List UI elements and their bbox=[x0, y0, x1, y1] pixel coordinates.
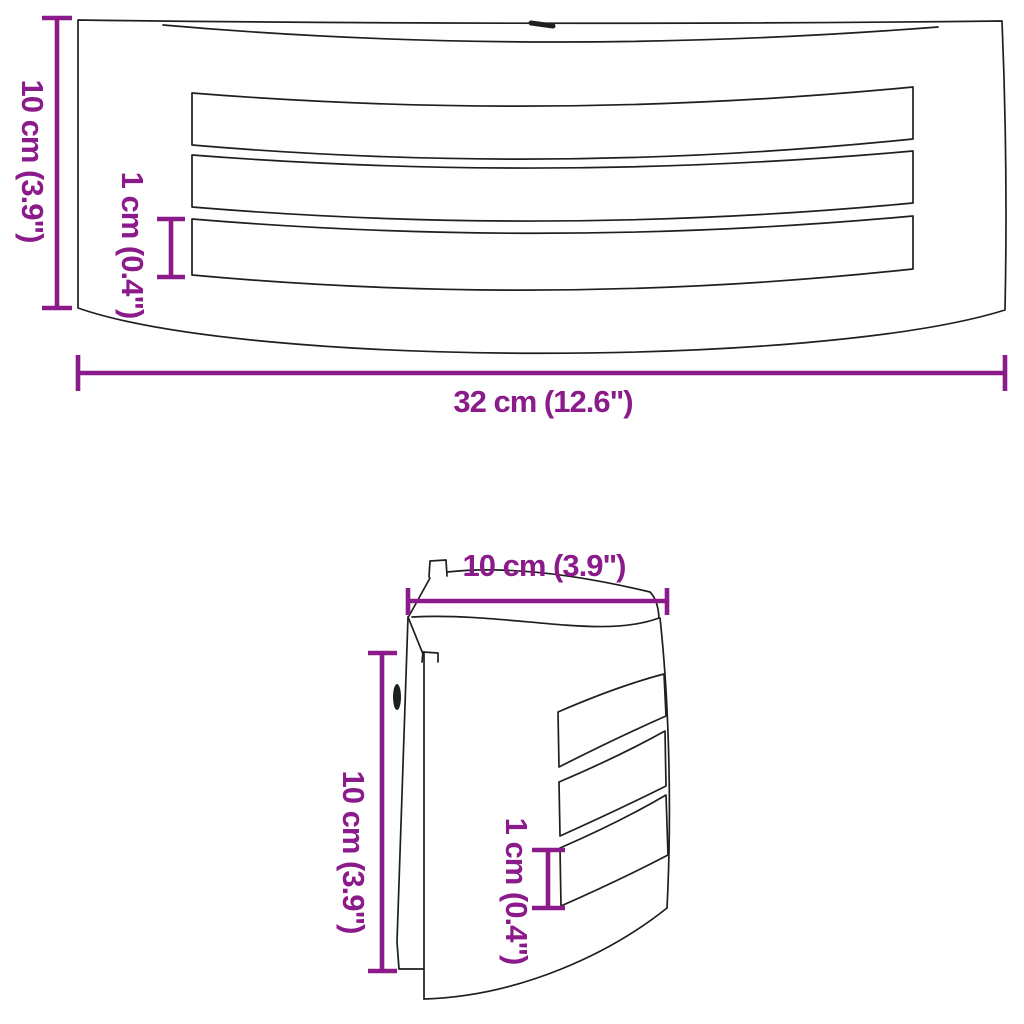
front-width-dimension-label: 32 cm (12.6") bbox=[453, 384, 632, 420]
side-height-dimension-label: 10 cm (3.9") bbox=[335, 771, 371, 934]
front-body-outline bbox=[78, 20, 1006, 353]
side-height-dimension-line bbox=[368, 653, 397, 971]
front-view-dimensions bbox=[42, 18, 1005, 391]
side-wall-plate-outline bbox=[397, 617, 424, 969]
front-slot-dimension-label: 1 cm (0.4") bbox=[114, 172, 150, 319]
side-slot-1 bbox=[558, 674, 666, 767]
front-slot-1 bbox=[192, 87, 913, 159]
front-slot-3 bbox=[192, 216, 913, 290]
side-slot-2 bbox=[559, 731, 666, 836]
front-view-drawing bbox=[78, 20, 1006, 353]
front-slot-dimension-line bbox=[157, 219, 185, 277]
side-depth-dimension-label: 10 cm (3.9") bbox=[463, 548, 626, 584]
side-top-face-near-edge bbox=[412, 616, 659, 626]
side-depth-dimension-line bbox=[408, 588, 667, 615]
front-height-dimension-label: 10 cm (3.9") bbox=[14, 80, 50, 243]
side-plate-top-slant bbox=[408, 617, 423, 654]
front-top-screw-notch bbox=[531, 23, 553, 26]
side-screw-hole bbox=[393, 684, 401, 710]
side-slot-dimension-label: 1 cm (0.4") bbox=[498, 818, 534, 965]
front-slot-2 bbox=[192, 151, 913, 221]
side-front-panel-right-edge bbox=[660, 618, 669, 908]
side-mount-knob bbox=[429, 560, 447, 577]
side-top-face-left-edge bbox=[409, 578, 430, 616]
side-front-panel-bottom-sweep bbox=[424, 908, 667, 999]
technical-drawing-canvas: 10 cm (3.9") 1 cm (0.4") 32 cm (12.6") 1… bbox=[0, 0, 1024, 1024]
